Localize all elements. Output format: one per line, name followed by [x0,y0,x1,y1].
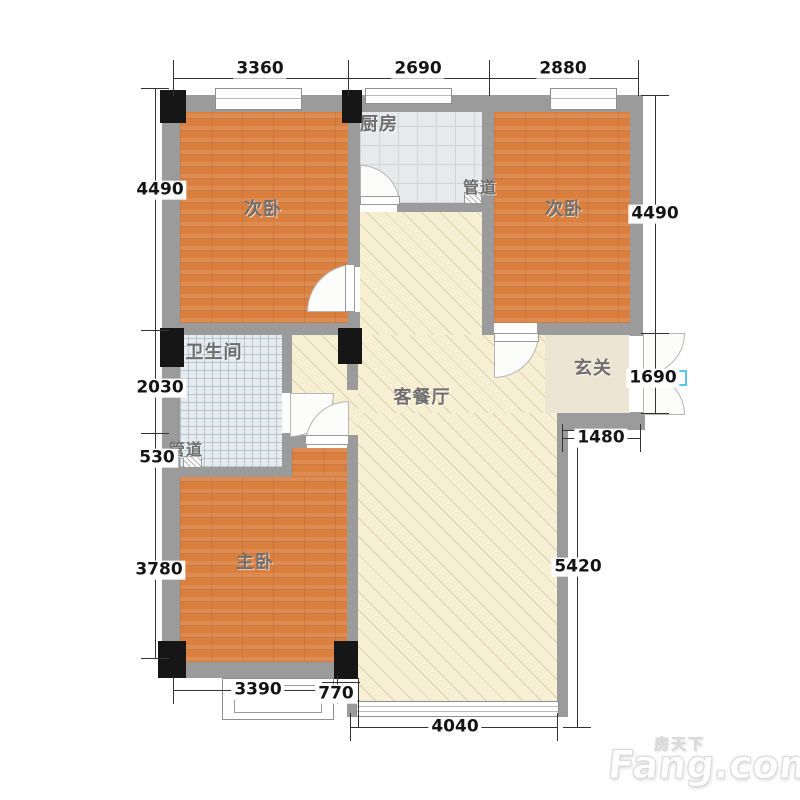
column-top-mid [342,90,362,123]
column-bottom-left [158,641,186,678]
dim-tick [141,88,169,89]
dim-tick [562,424,563,452]
wall-master-bottom [162,662,358,678]
dim-tick [141,433,169,434]
living-floor-bottom [358,413,557,702]
dim-label-770: 770 [315,685,357,704]
bedroom-right-label: 次卧 [545,195,583,221]
dim-label-4490-right: 4490 [628,205,681,224]
dim-tick [641,95,669,96]
window-kitchen-top [365,88,452,104]
dim-tick [141,658,169,659]
wall-master-right [347,435,358,662]
door-leaf-bedroomR [494,333,539,342]
dim-label-2880: 2880 [536,60,589,79]
dim-line-5420 [577,430,578,727]
door-leaf-kitchen [360,196,400,205]
dim-tick [173,60,174,96]
dim-tick [489,60,490,96]
dim-label-4040: 4040 [428,718,481,737]
dim-label-1690: 1690 [626,369,679,388]
floor-plan-canvas: 次卧 厨房 管道 次卧 卫生间 管道 客餐厅 玄关 主卧 3360 2690 2… [0,0,800,800]
bedroom-left-label: 次卧 [244,195,282,221]
column-corridor [338,328,362,364]
dim-tick [348,60,349,96]
wall-bath-right-b [282,433,292,467]
wall-bedroomL-bottom [162,323,360,335]
kitchen-label: 厨房 [360,110,398,136]
dim-line-770 [358,678,359,727]
dim-tick [141,330,169,331]
window-bedroomL-top [215,88,302,110]
window-living-bottom [356,701,559,717]
dim-tick [557,713,558,741]
dim-label-3390: 3390 [231,681,284,700]
dim-label-2690: 2690 [391,60,444,79]
dim-label-1480: 1480 [574,429,627,448]
wall-corridor-stub [347,364,358,390]
dim-label-5420: 5420 [551,558,604,577]
fang-watermark-logo: Fang.com [606,743,800,788]
dim-tick [640,424,641,452]
entry-label: 玄关 [574,354,612,380]
wall-bath-bottom [162,467,292,477]
door-leaf-master [305,435,349,445]
dim-label-4490-left: 4490 [133,181,186,200]
dim-label-530: 530 [136,449,178,468]
wall-bedroomL-right [348,112,360,267]
wall-kitchen-bottom [397,203,494,212]
wall-kitchen-right [482,112,494,335]
dim-tick [173,676,174,704]
master-label: 主卧 [236,548,274,574]
dim-tick [350,713,351,741]
dim-label-3360: 3360 [233,60,286,79]
master-floor-strip [292,448,347,477]
dim-label-3780: 3780 [132,561,185,580]
window-bedroomR-top [550,88,617,110]
dim-label-2030: 2030 [133,379,186,398]
dim-line-right [655,95,656,413]
wall-bath-right-a [282,335,292,393]
bathroom-label: 卫生间 [186,338,243,364]
dim-tick [563,727,591,728]
dim-tick [641,413,669,414]
column-bottom-mid [334,641,358,679]
dim-tick [641,333,669,334]
duct-top-label: 管道 [463,174,497,198]
column-bath-left [160,328,184,367]
living-floor-top [360,212,482,335]
dim-tick [638,60,639,96]
door-leaf-bedroomL [345,264,355,312]
living-label: 客餐厅 [394,383,451,409]
wall-bedroomL-stub [348,312,360,323]
fang-watermark: 房天下 Fang.com [606,733,800,795]
wall-bedroomR-bottom [537,323,643,335]
